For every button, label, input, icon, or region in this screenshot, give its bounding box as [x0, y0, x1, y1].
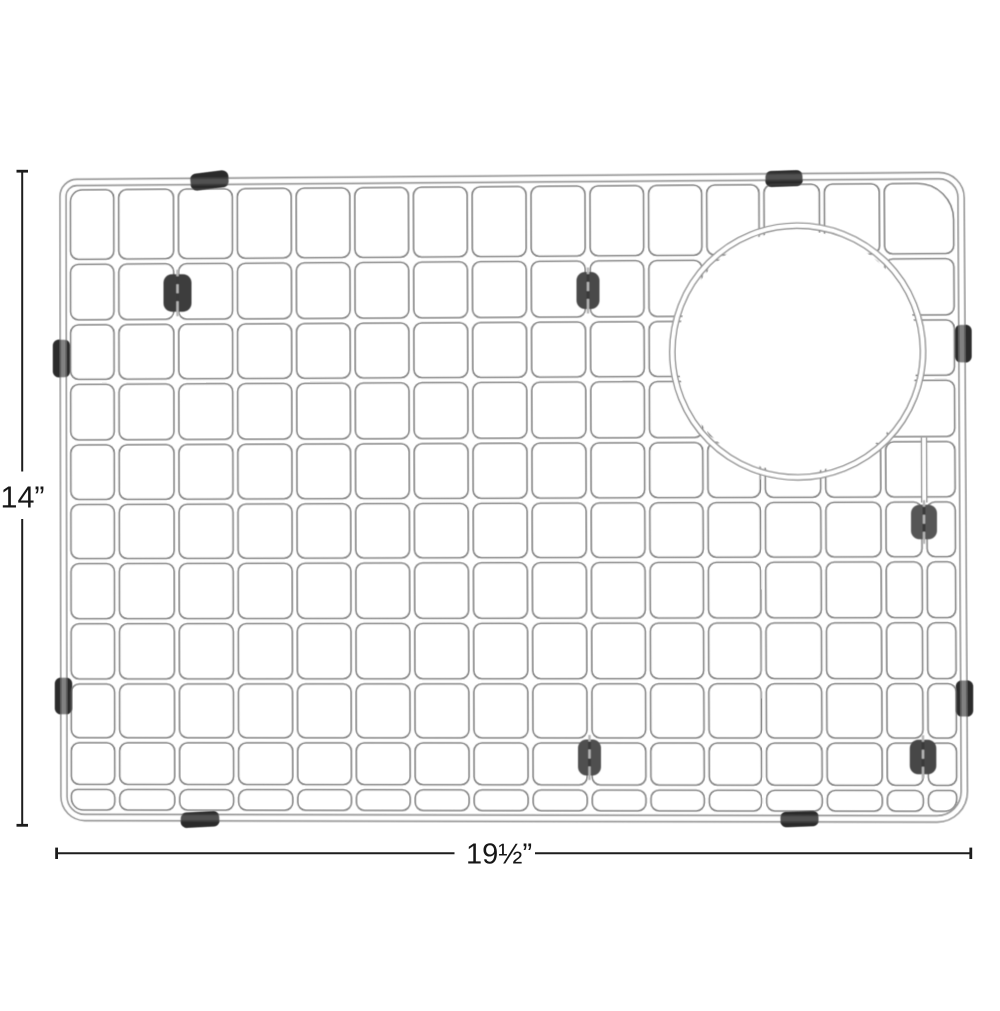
- svg-text:19½”: 19½”: [466, 839, 532, 871]
- svg-text:14”: 14”: [1, 481, 45, 515]
